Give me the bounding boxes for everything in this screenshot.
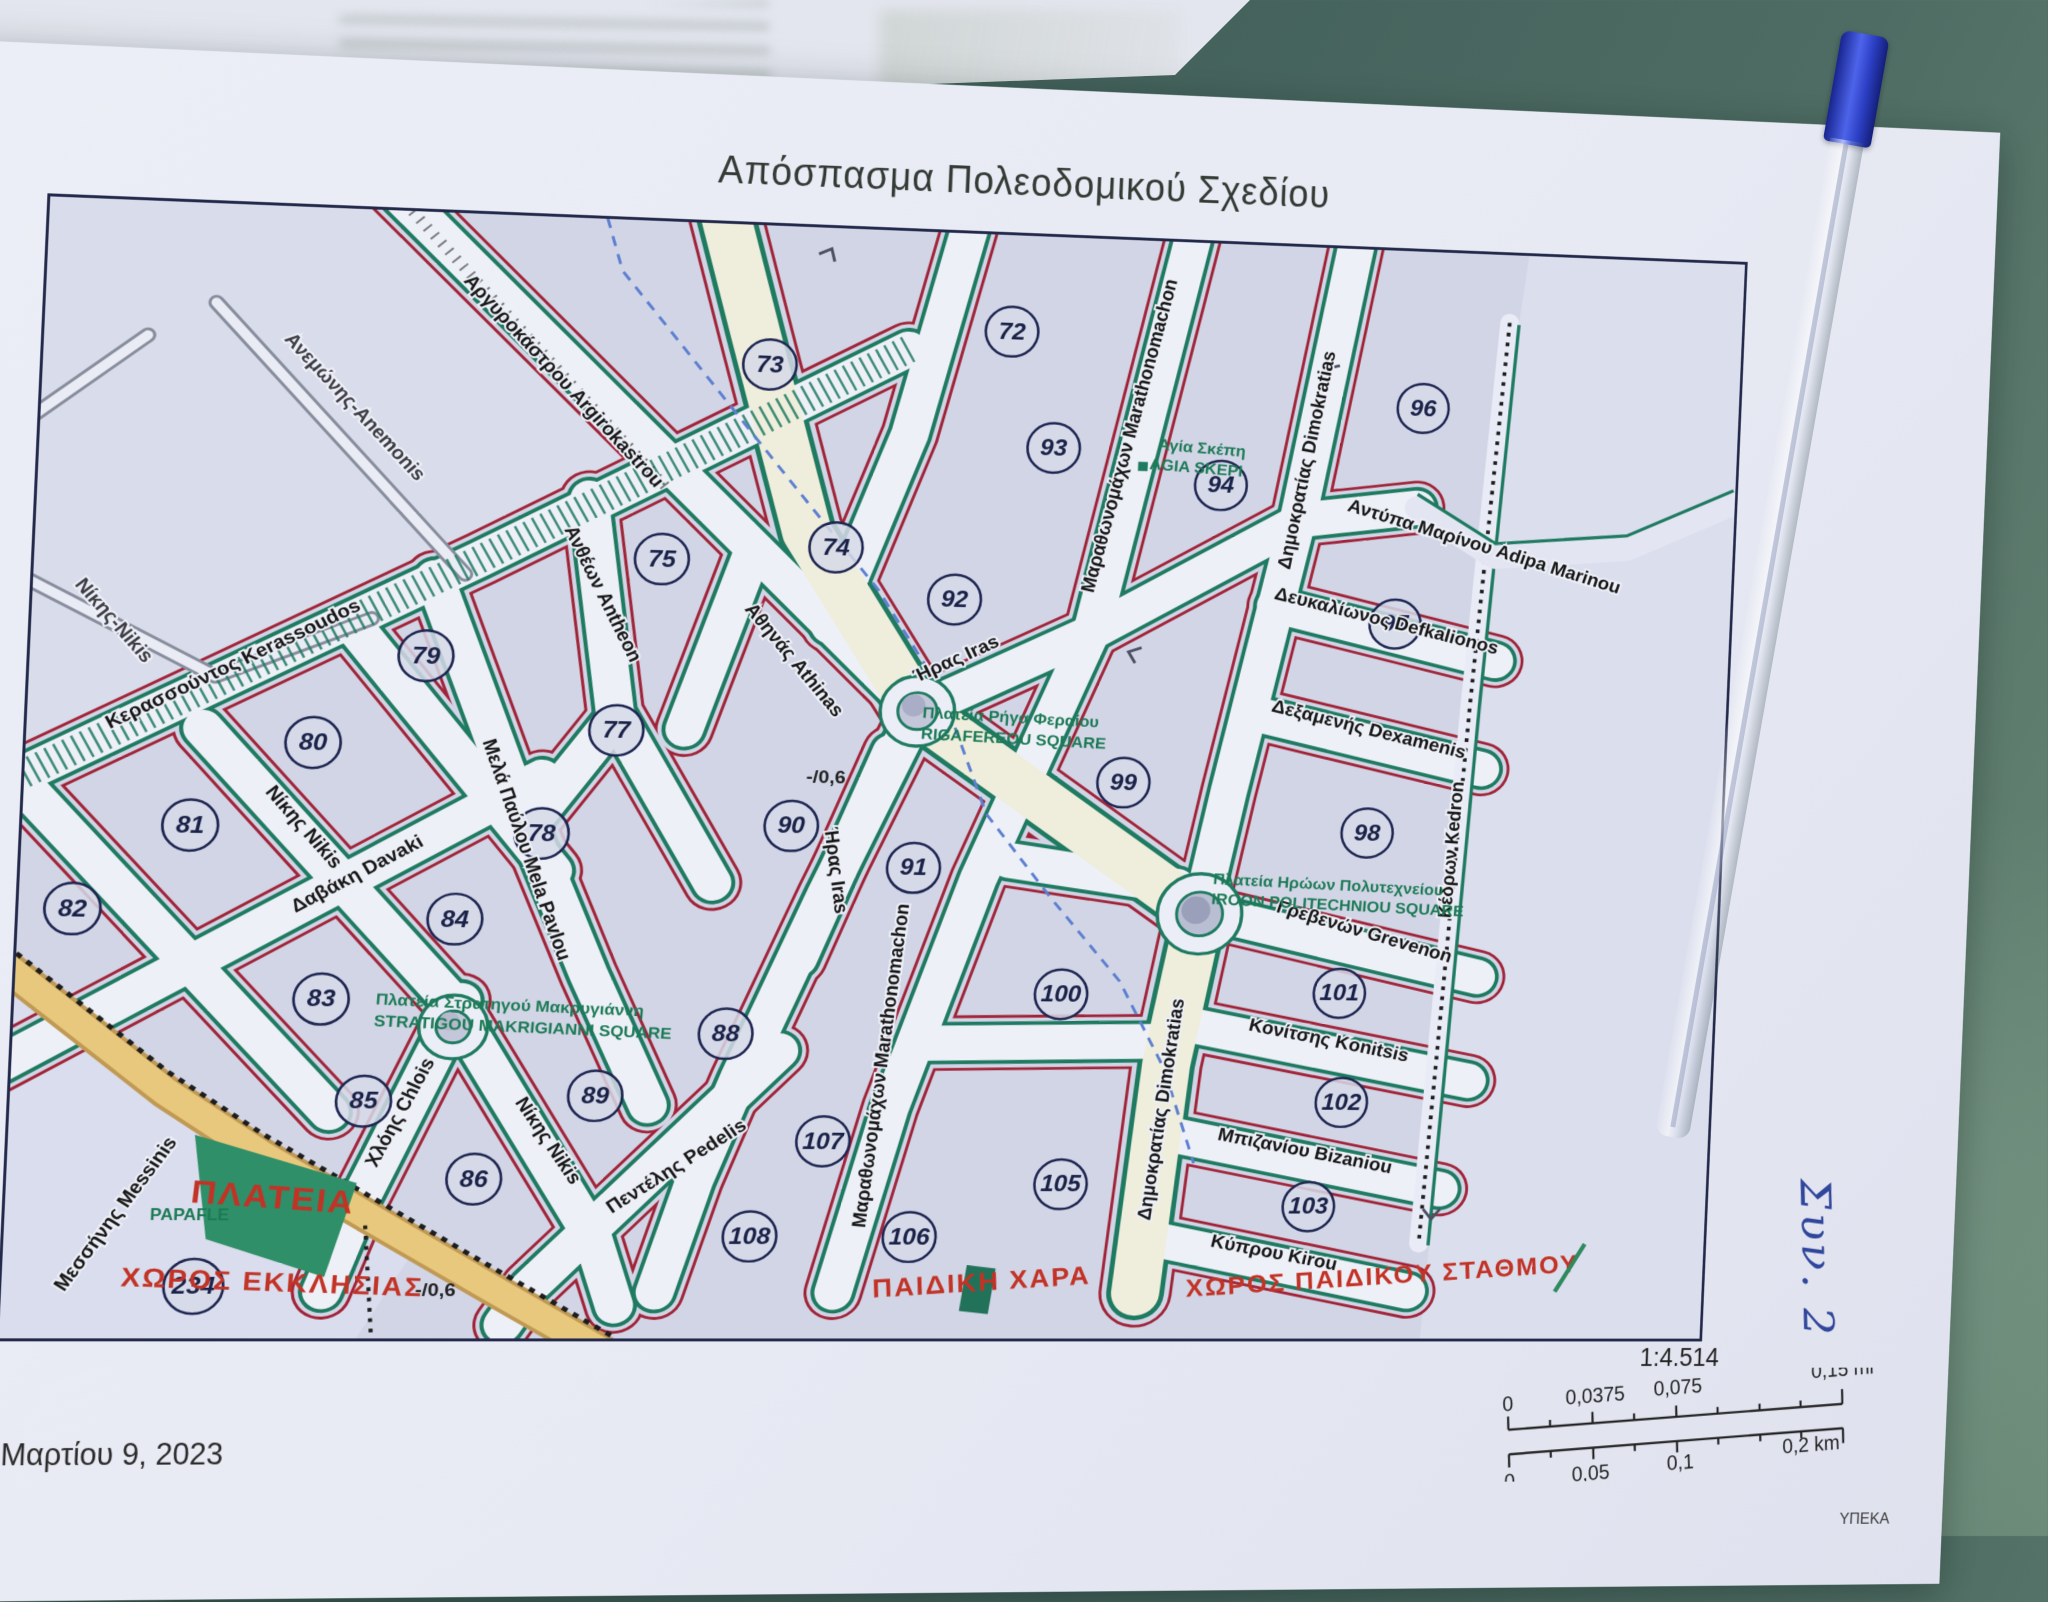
city-block-number: 106 — [882, 1212, 937, 1262]
svg-text:107: 107 — [802, 1128, 845, 1154]
svg-text:77: 77 — [602, 717, 632, 744]
scale-km-tick: 0,05 — [1571, 1460, 1609, 1482]
city-block-number: 105 — [1033, 1159, 1087, 1209]
svg-text:84: 84 — [440, 906, 469, 933]
city-block-number: 79 — [398, 630, 455, 682]
svg-text:93: 93 — [1040, 435, 1068, 461]
scale-km-tick: 0 — [1504, 1469, 1515, 1482]
svg-text:103: 103 — [1288, 1194, 1329, 1220]
svg-text:96: 96 — [1410, 395, 1438, 421]
city-block-number: 77 — [588, 705, 644, 757]
city-block-number: 80 — [284, 716, 341, 768]
city-block-number: 100 — [1034, 969, 1088, 1019]
city-block-number: 73 — [742, 339, 798, 391]
svg-text:102: 102 — [1321, 1090, 1362, 1116]
urban-plan-map: 72 73 74 75 77 78 79 80 81 82 83 84 85 8… — [0, 196, 1745, 1338]
svg-text:81: 81 — [175, 812, 205, 839]
agia-skepi-marker — [1138, 462, 1148, 471]
svg-text:89: 89 — [581, 1083, 610, 1109]
city-block-number: 84 — [426, 893, 483, 944]
floor-ratio-annotation: -/0,6 — [806, 767, 846, 788]
scale-mi-tick: 0 — [1502, 1392, 1513, 1417]
photo-scene: Απόσπασμα Πολεοδομικού Σχεδίου — [0, 0, 2048, 1536]
handwritten-note: Συν. 2 — [1790, 1177, 1846, 1479]
city-block-number: 86 — [445, 1154, 502, 1205]
svg-text:91: 91 — [899, 855, 927, 881]
city-block-number: 102 — [1315, 1078, 1368, 1127]
city-block-number: 91 — [886, 843, 941, 894]
svg-text:80: 80 — [298, 729, 328, 756]
city-block-number: 101 — [1313, 968, 1366, 1018]
svg-text:100: 100 — [1040, 981, 1082, 1007]
svg-text:72: 72 — [998, 318, 1026, 345]
city-block-number: 83 — [292, 973, 349, 1025]
svg-text:98: 98 — [1353, 820, 1380, 846]
city-block-number: 72 — [985, 306, 1040, 358]
svg-text:82: 82 — [57, 895, 87, 922]
city-block-number: 88 — [698, 1008, 754, 1059]
svg-text:101: 101 — [1319, 980, 1360, 1006]
svg-text:73: 73 — [756, 351, 785, 378]
svg-text:108: 108 — [728, 1223, 771, 1249]
svg-text:85: 85 — [349, 1088, 380, 1115]
svg-text:106: 106 — [888, 1224, 931, 1250]
city-block-number: 90 — [764, 800, 820, 851]
city-block-number: 108 — [722, 1211, 778, 1261]
svg-text:99: 99 — [1109, 770, 1137, 796]
scale-km-tick: 0,1 — [1667, 1449, 1694, 1475]
scale-mi-tick: 0,0375 — [1565, 1381, 1625, 1409]
city-block-number: 93 — [1026, 422, 1080, 473]
city-block-number: 103 — [1282, 1182, 1335, 1231]
svg-text:83: 83 — [306, 986, 336, 1013]
floor-ratio-annotation: -/0,6 — [415, 1280, 456, 1301]
city-block-number: 98 — [1340, 808, 1393, 858]
svg-text:75: 75 — [647, 546, 677, 573]
city-block-number: 92 — [927, 574, 982, 625]
city-block-number: 81 — [161, 799, 219, 851]
map-frame: 72 73 74 75 77 78 79 80 81 82 83 84 85 8… — [0, 193, 1748, 1341]
svg-text:88: 88 — [711, 1021, 740, 1047]
agency-label: ΥΠΕΚΑ — [1803, 1509, 1925, 1528]
svg-text:86: 86 — [459, 1166, 489, 1192]
city-block-number: 107 — [795, 1116, 850, 1166]
svg-text:79: 79 — [411, 642, 440, 669]
document-date: Μαρτίου 9, 2023 — [0, 1437, 224, 1474]
city-block-number: 75 — [634, 533, 690, 585]
city-block-number: 89 — [567, 1070, 623, 1121]
scale-mi-tick: 0,075 — [1653, 1373, 1702, 1400]
svg-text:105: 105 — [1040, 1171, 1083, 1197]
city-block-number: 82 — [43, 882, 101, 934]
city-block-number: 99 — [1096, 757, 1150, 807]
svg-text:90: 90 — [777, 813, 806, 839]
svg-text:92: 92 — [940, 586, 968, 612]
city-block-number: 96 — [1397, 383, 1450, 434]
map-document-paper: Απόσπασμα Πολεοδομικού Σχεδίου — [0, 40, 2000, 1602]
svg-text:74: 74 — [822, 534, 851, 561]
city-block-number: 74 — [808, 522, 863, 573]
